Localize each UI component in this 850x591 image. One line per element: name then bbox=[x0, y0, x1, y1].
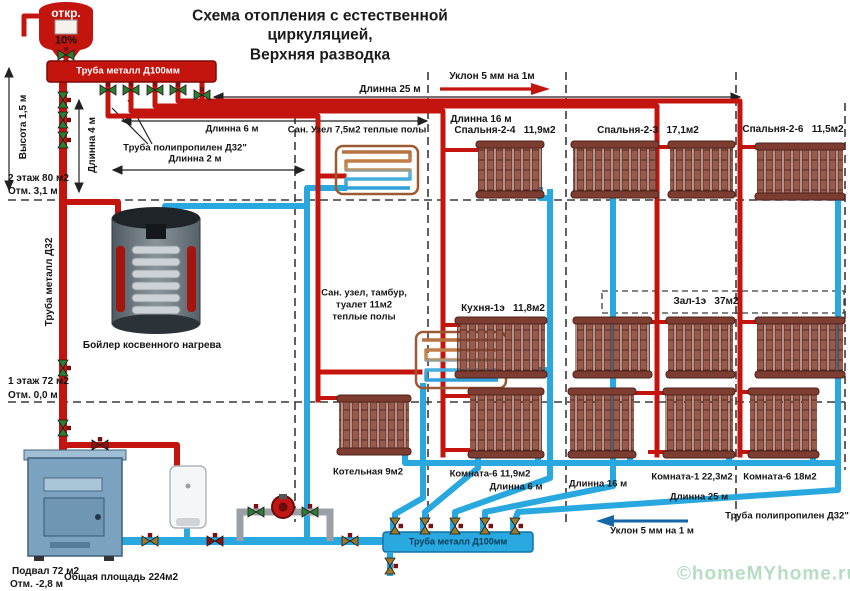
radiator bbox=[568, 388, 636, 458]
riser-pipe-label: Труба металл Д32 bbox=[45, 238, 55, 327]
room-san-uzel-1f-line3: теплые полы bbox=[332, 312, 395, 322]
radiator bbox=[476, 141, 544, 198]
length6-bottom-label: Длинна 6 м bbox=[490, 482, 543, 492]
room-kitchen-label: Кухня-1э 11,8м2 bbox=[461, 304, 545, 314]
page-title-line3: Верхняя разводка bbox=[250, 47, 390, 63]
room-boiler-room-label: Котельная 9м2 bbox=[333, 467, 403, 477]
radiator bbox=[663, 388, 735, 458]
floor-heating-coil-2f bbox=[336, 146, 418, 194]
electric-boiler bbox=[170, 466, 206, 528]
length16-top-label: Длинна 16 м bbox=[450, 115, 511, 125]
room-1-label: Комната-1 22,3м2 bbox=[651, 472, 732, 482]
basement-elevation-label: Отм. -2,8 м bbox=[10, 580, 63, 590]
room-san-uzel-2f-label: Сан. Узел 7,5м2 теплые полы bbox=[288, 125, 427, 135]
radiator bbox=[755, 143, 845, 200]
bottom-manifold bbox=[383, 518, 533, 576]
length4-annotation: Длинна 4 м bbox=[88, 117, 98, 173]
floor2-area-label: 2 этаж 80 м2 bbox=[8, 174, 69, 184]
length25-top-label: Длинна 25 м bbox=[359, 85, 420, 95]
room-hall-label: Зал-1э 37м2 bbox=[673, 297, 738, 307]
length2-top-label: Длинна 2 м bbox=[169, 154, 222, 164]
length6-top-label: Длинна 6 м bbox=[206, 124, 259, 134]
room-6a-label: Комната-6 11,9м2 bbox=[450, 469, 531, 479]
radiator bbox=[668, 141, 735, 198]
room-san-uzel-1f-line1: Сан. узел, тамбур, bbox=[321, 288, 407, 298]
radiator bbox=[571, 141, 659, 198]
radiator bbox=[468, 388, 544, 458]
height-annotation: Высота 1,5 м bbox=[19, 95, 29, 160]
page-title-line2: циркуляцией, bbox=[267, 27, 372, 43]
floor2-elevation-label: Отм. 3,1 м bbox=[8, 187, 58, 197]
radiator bbox=[748, 388, 819, 458]
radiator bbox=[755, 317, 845, 378]
page-title-line1: Схема отопления с естественной bbox=[192, 8, 448, 24]
watermark: ©homeMYhome.ru bbox=[677, 565, 850, 584]
total-area-label: Общая площадь 224м2 bbox=[64, 573, 178, 583]
slope-top-label: Уклон 5 мм на 1м bbox=[449, 72, 534, 82]
floor1-elevation-label: Отм. 0,0 м bbox=[8, 391, 58, 401]
heating-scheme-diagram: Схема отопления с естественной циркуляци… bbox=[0, 0, 850, 591]
top-manifold-label: Труба металл Д100мм bbox=[76, 66, 180, 76]
radiator bbox=[455, 317, 547, 378]
room-san-uzel-1f-line2: туалет 11м2 bbox=[336, 300, 392, 310]
room-bedroom26-label: Спальня-2-6 11,5м2 bbox=[742, 125, 843, 135]
room-bedroom24-label: Спальня-2-4 11,9м2 bbox=[454, 126, 555, 136]
length25-bottom-label: Длинна 25 м bbox=[670, 492, 728, 502]
indirect-boiler bbox=[112, 207, 200, 334]
floor1-area-label: 1 этаж 72 м2 bbox=[8, 377, 69, 387]
pump-bypass bbox=[240, 494, 330, 541]
bottom-manifold-label: Труба металл Д100мм bbox=[409, 538, 507, 547]
length16-bottom-label: Длинна 16 м bbox=[569, 479, 627, 489]
radiator bbox=[337, 395, 411, 455]
solid-fuel-boiler bbox=[24, 450, 126, 561]
slope-bottom-label: Уклон 5 мм на 1 м bbox=[610, 526, 694, 536]
radiator bbox=[573, 317, 652, 378]
poly-pipe-top-label: Труба полипропилен Д32" bbox=[123, 143, 247, 153]
indirect-boiler-label: Бойлер косвенного нагрева bbox=[83, 341, 221, 351]
room-bedroom23-label: Спальня-2-3 17,1м2 bbox=[597, 126, 699, 136]
expansion-tank-percent: 10% bbox=[55, 36, 77, 47]
radiator bbox=[666, 317, 735, 378]
poly-pipe-bottom-label: Труба полипропилен Д32" bbox=[725, 511, 849, 521]
room-6b-label: Комната-6 18м2 bbox=[743, 472, 816, 482]
expansion-tank-open-label: откр. bbox=[51, 7, 81, 19]
